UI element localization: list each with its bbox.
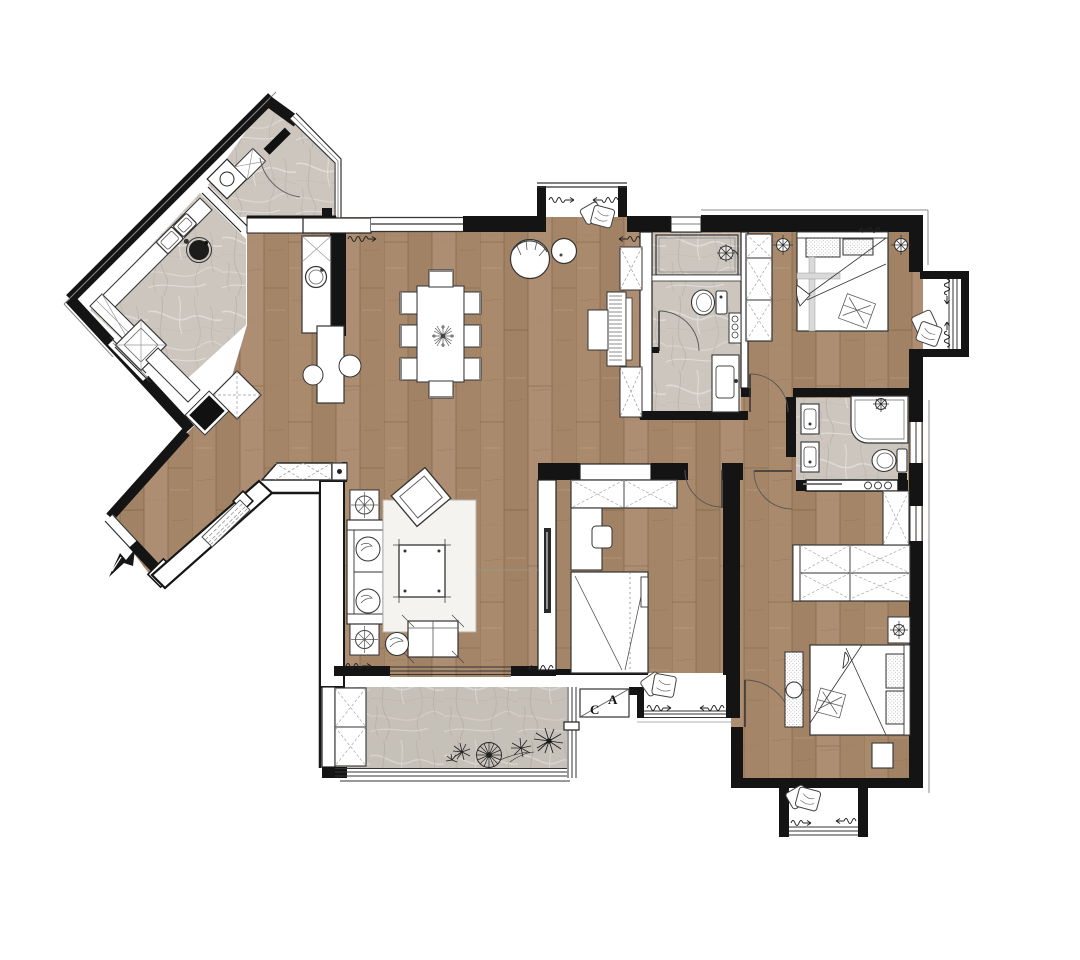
svg-text:C: C [590,702,599,717]
svg-text:A: A [608,692,618,707]
